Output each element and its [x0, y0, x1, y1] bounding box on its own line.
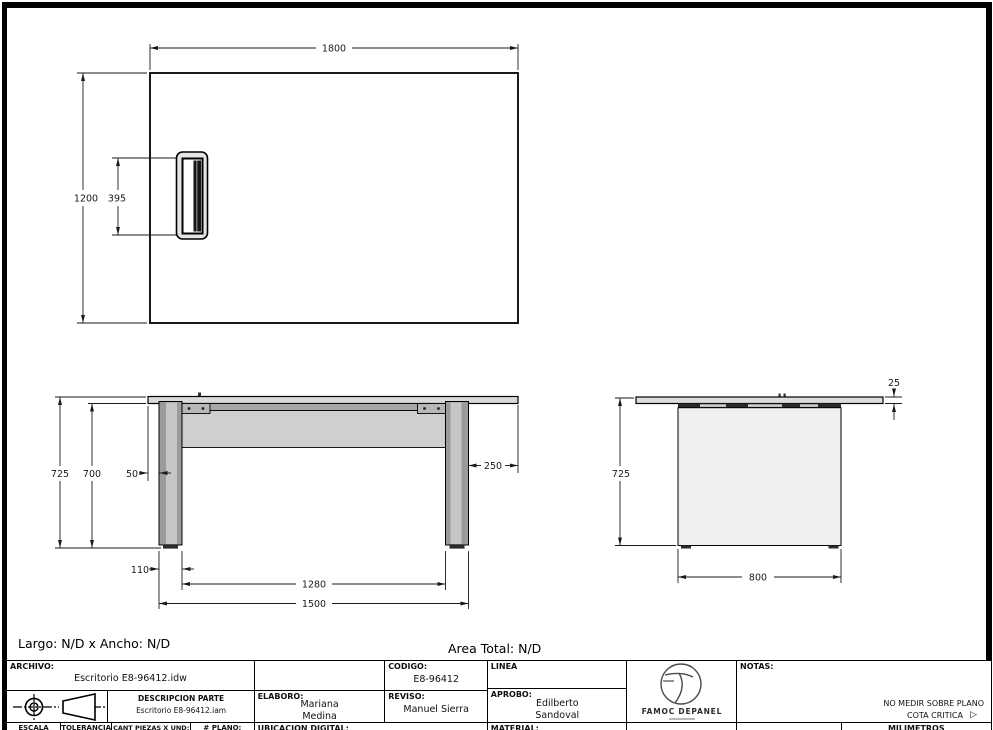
titleblock-notas-cell: NOTAS: NO MEDIR SOBRE PLANO COTA CRITICA…: [736, 660, 992, 724]
archivo-label: ARCHIVO:: [10, 662, 54, 671]
reviso-value: Manuel Sierra: [385, 704, 487, 715]
titleblock-milimetros-cell: MILIMETROS: [841, 722, 992, 730]
titleblock-row3-empty2: [736, 722, 842, 730]
titleblock-row3-empty1: [626, 722, 737, 730]
titleblock-codigo-cell: CODIGO: E8-96412: [384, 660, 488, 691]
front-foot-left: [163, 545, 178, 549]
dim-front-heights: [55, 397, 161, 548]
titleblock-reviso-cell: REVISO: Manuel Sierra: [384, 690, 488, 724]
logo-tagline-mark: [669, 718, 695, 720]
front-bracket-left: [182, 404, 210, 414]
titleblock-descripcion-cell: DESCRIPCION PARTE Escritorio E8-96412.ia…: [107, 690, 256, 724]
front-rail: [182, 404, 446, 411]
elaboro-last: Medina: [255, 711, 385, 722]
titleblock-linea-cell: LINEA: [487, 660, 628, 689]
front-bracket-right: [418, 404, 446, 414]
tolerancia-label: TOLERANCIA: [61, 724, 112, 730]
dim-side-top-thickness-label: 25: [888, 378, 900, 389]
titleblock-escala-cell: ESCALA: [6, 722, 61, 730]
dim-front-height-total-label: 725: [51, 469, 69, 480]
drawing-sheet: 1800 1200 395: [0, 0, 993, 730]
titleblock-cantpiezas-cell: CANT PIEZAS X UND:: [111, 722, 191, 730]
aprobo-last: Sandoval: [488, 710, 627, 721]
notas-cota-critica: COTA CRITICA: [907, 711, 963, 720]
famoc-brand-text: FAMOC DEPANEL: [627, 707, 736, 716]
codigo-value: E8-96412: [385, 674, 487, 685]
descripcion-label: DESCRIPCION PARTE: [108, 694, 255, 703]
side-foot-front: [681, 546, 691, 549]
side-leg-panel: [678, 408, 841, 546]
dim-front-height-under-label: 700: [83, 469, 101, 480]
ubicacion-label: UBICACION DIGITAL:: [258, 724, 349, 730]
projection-symbol: [7, 691, 106, 722]
side-view: 25 725 800: [612, 378, 902, 584]
dim-side-top-thickness: [885, 389, 902, 420]
top-view: 1800 1200 395: [74, 44, 518, 324]
area-total: Area Total: N/D: [448, 641, 541, 656]
size-summary: Largo: N/D x Ancho: N/D: [18, 636, 170, 651]
titleblock-projection-cell: [6, 690, 108, 724]
titleblock-archivo-cell: ARCHIVO: Escritorio E8-96412.idw: [6, 660, 255, 691]
titleblock-ubicacion-cell: UBICACION DIGITAL:: [254, 722, 489, 730]
dim-front-inner-span-label: 1280: [302, 580, 326, 591]
descripcion-value: Escritorio E8-96412.iam: [108, 706, 255, 715]
reviso-label: REVISO:: [388, 692, 425, 701]
titleblock-empty-cell: [254, 660, 386, 691]
dim-front-leg-width-label: 110: [131, 565, 149, 576]
aprobo-first: Edilberto: [488, 698, 627, 709]
dim-side-depth-label: 800: [749, 573, 767, 584]
titleblock-material-cell: MATERIAL:: [487, 722, 628, 730]
titleblock-logo-cell: FAMOC DEPANEL: [626, 660, 737, 724]
drawing-views: 1800 1200 395: [0, 0, 993, 660]
material-label: MATERIAL:: [491, 724, 539, 730]
dim-top-height-label: 1200: [74, 194, 98, 205]
front-foot-right: [450, 545, 465, 549]
dim-front-leg-width: [149, 551, 194, 609]
notas-label: NOTAS:: [740, 662, 773, 671]
archivo-value: Escritorio E8-96412.idw: [7, 673, 254, 684]
milimetros-label: MILIMETROS: [842, 724, 991, 730]
codigo-label: CODIGO:: [388, 662, 427, 671]
dim-top-width-label: 1800: [322, 44, 346, 55]
dim-side-height-label: 725: [612, 469, 630, 480]
dim-front-outer-span-label: 1500: [302, 599, 326, 610]
elaboro-first: Mariana: [255, 699, 385, 710]
linea-label: LINEA: [491, 662, 517, 671]
side-foot-back: [829, 546, 839, 549]
cant-piezas-label: CANT PIEZAS X UND:: [112, 724, 190, 730]
dim-front-overhang-right-label: 250: [484, 461, 502, 472]
front-view: 725 700 50 250 110: [51, 393, 518, 611]
titleblock-tolerancia-cell: TOLERANCIA: [60, 722, 113, 730]
dim-front-overhang-left-label: 50: [126, 469, 138, 480]
escala-label: ESCALA: [7, 724, 60, 730]
side-tabletop: [636, 397, 883, 404]
titleblock-elaboro-cell: ELABORO: Mariana Medina: [254, 690, 386, 724]
notas-no-medir: NO MEDIR SOBRE PLANO: [883, 699, 984, 708]
front-beam: [182, 411, 446, 448]
plano-label: # PLANO:: [191, 724, 254, 730]
titleblock-plano-cell: # PLANO:: [190, 722, 255, 730]
cota-critica-triangle-icon: ▷: [970, 710, 977, 720]
famoc-logo-icon: [627, 661, 736, 707]
dim-grommet-label: 395: [108, 194, 126, 205]
titleblock-aprobo-cell: APROBO: Edilberto Sandoval: [487, 688, 628, 724]
